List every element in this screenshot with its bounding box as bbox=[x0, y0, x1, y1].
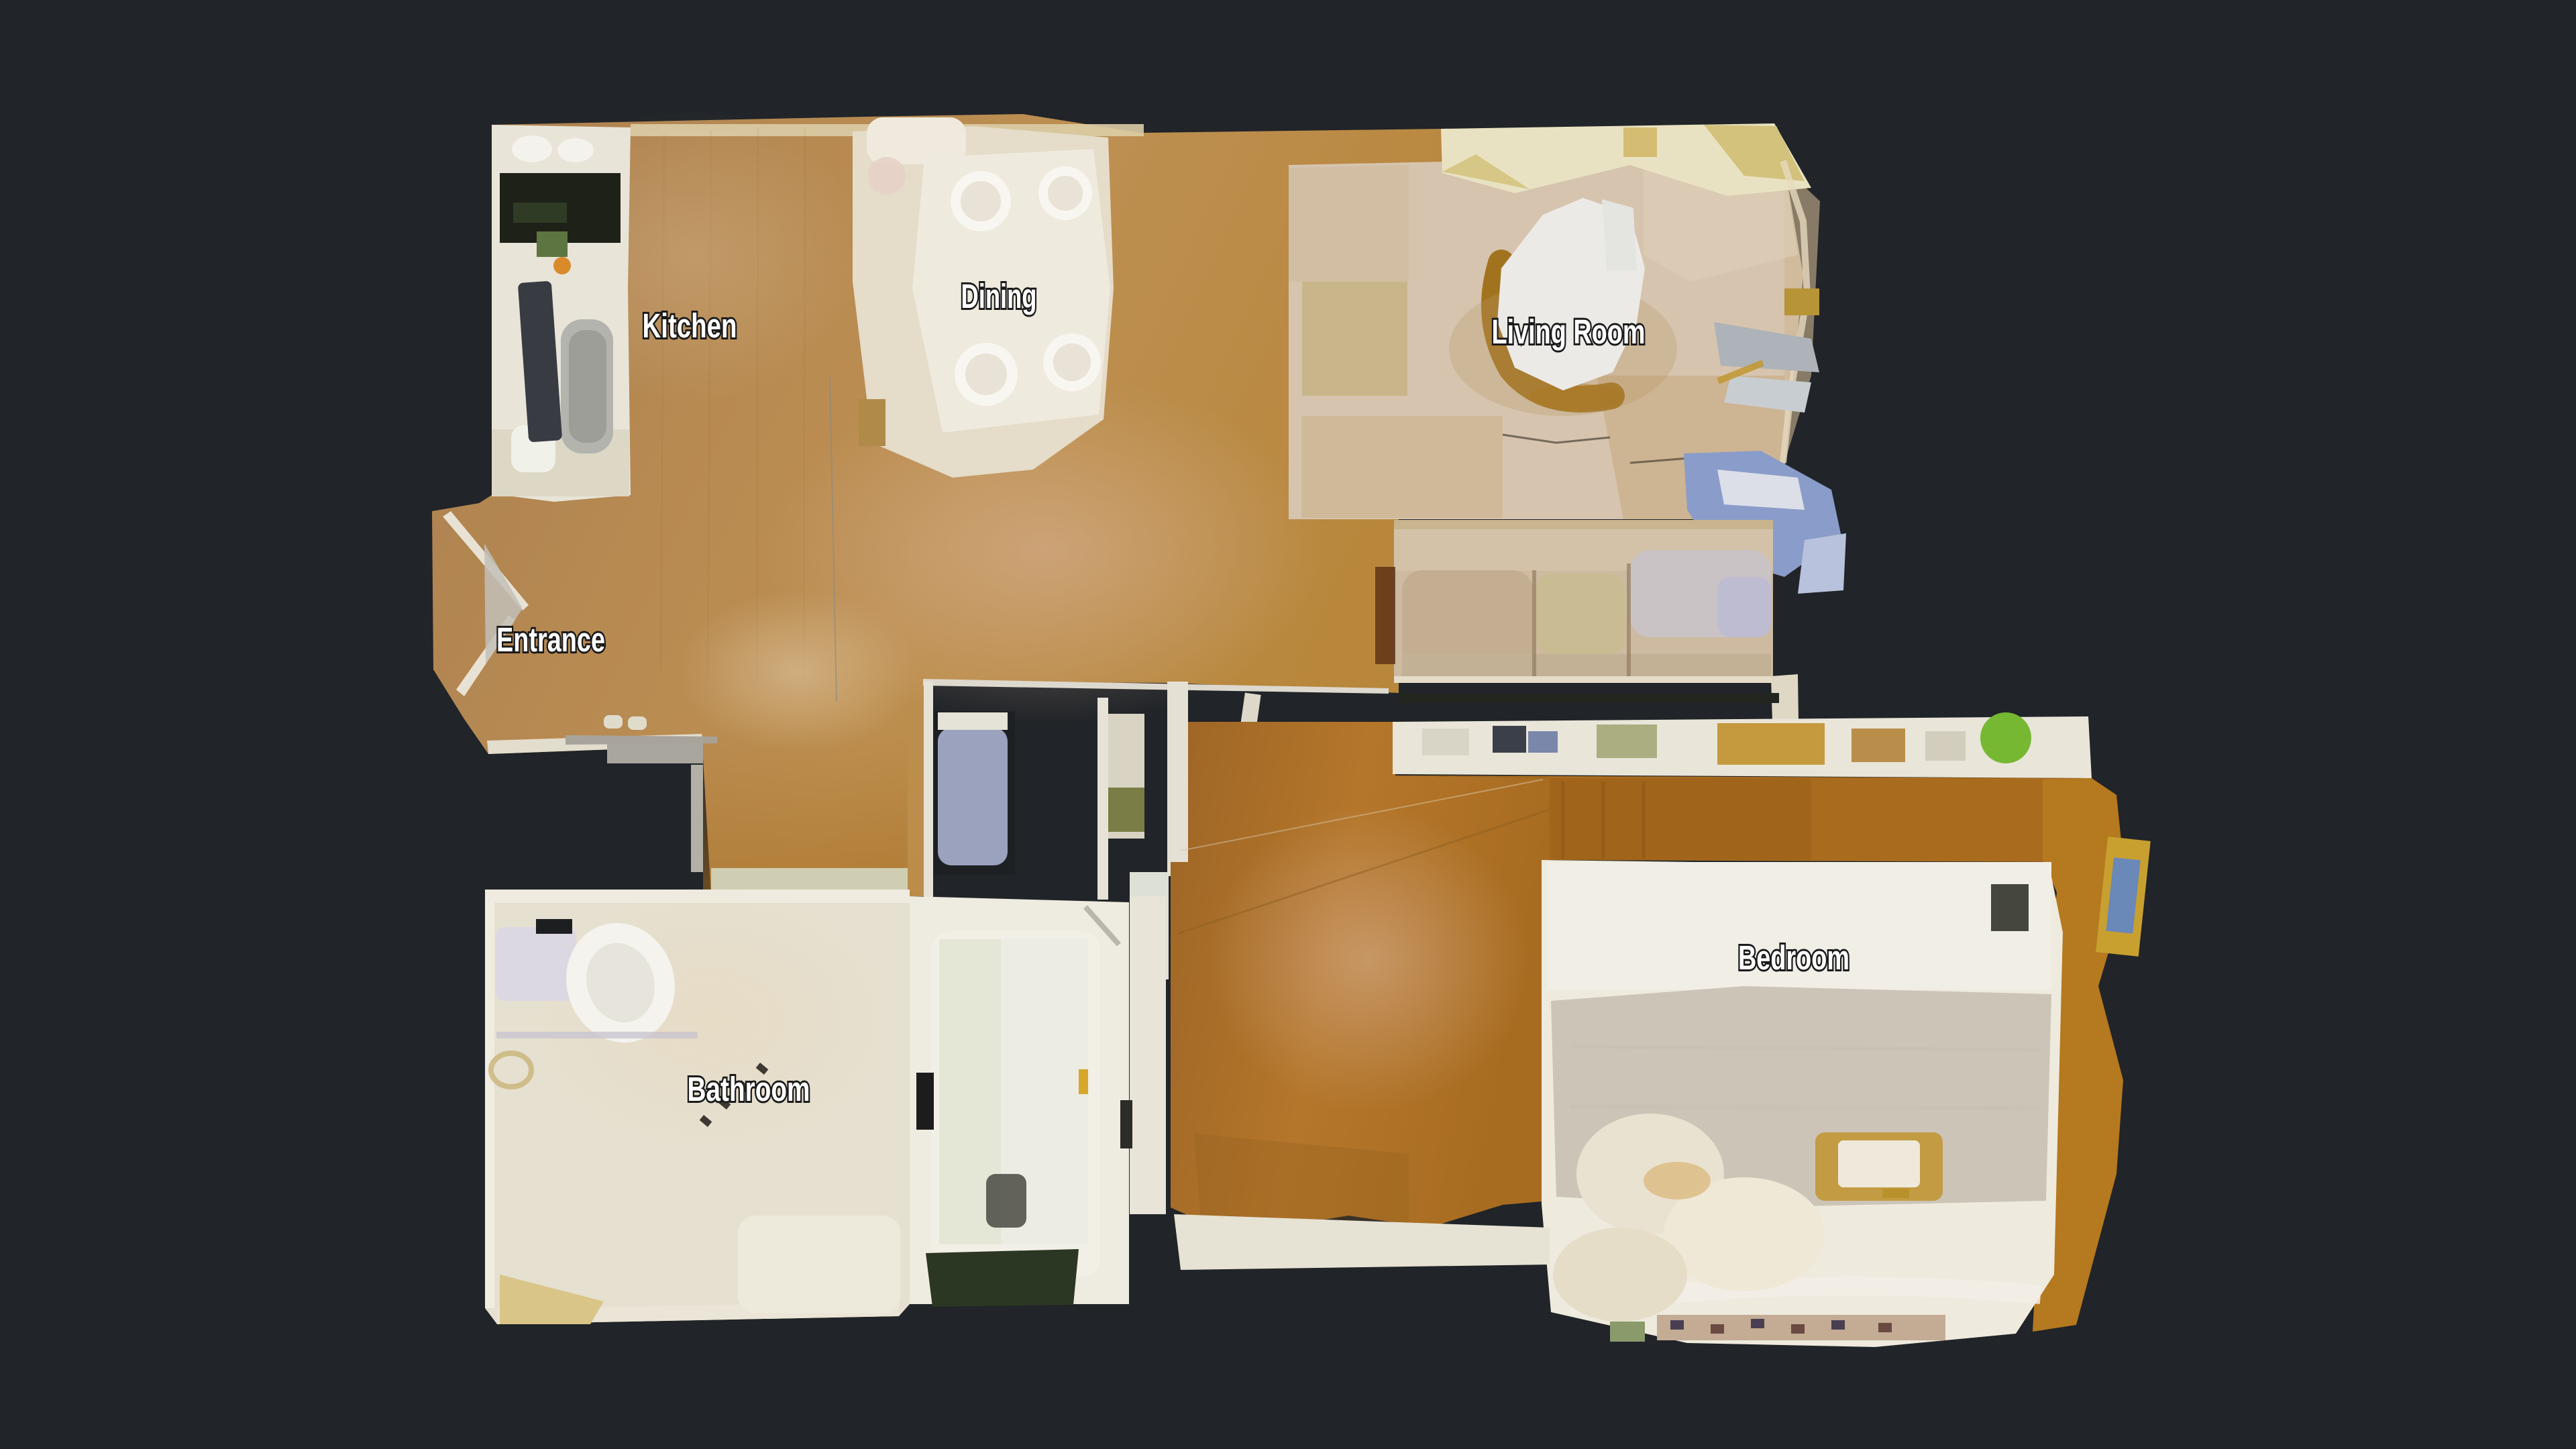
svg-text:Living Room: Living Room bbox=[1492, 313, 1646, 351]
svg-text:Entrance: Entrance bbox=[496, 621, 605, 659]
svg-text:Dining: Dining bbox=[961, 277, 1037, 315]
svg-text:Kitchen: Kitchen bbox=[643, 307, 737, 345]
svg-text:Bathroom: Bathroom bbox=[688, 1070, 810, 1108]
svg-text:Bedroom: Bedroom bbox=[1738, 938, 1849, 977]
